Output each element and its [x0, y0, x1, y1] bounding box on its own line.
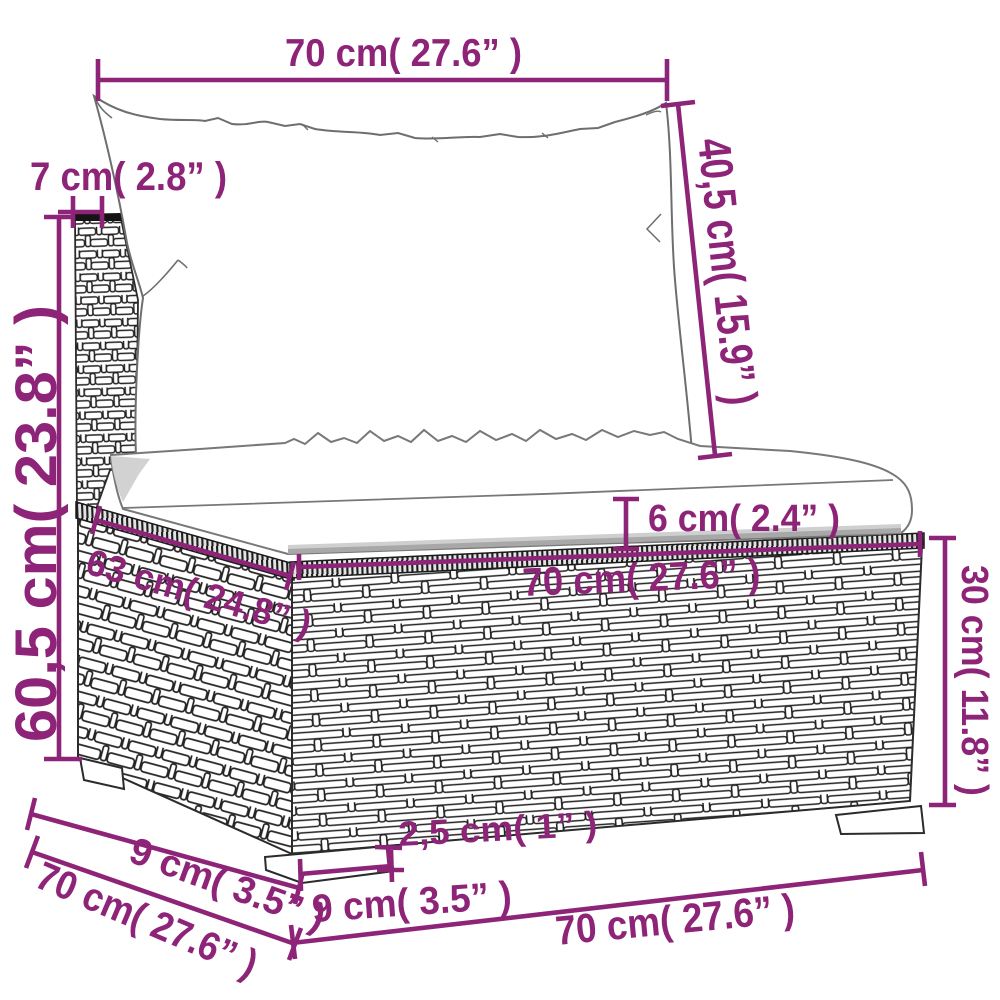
- svg-text:60,5 cm( 23.8” ): 60,5 cm( 23.8” ): [4, 305, 69, 742]
- svg-text:6 cm( 2.4” ): 6 cm( 2.4” ): [648, 498, 840, 540]
- svg-text:7 cm( 2.8” ): 7 cm( 2.8” ): [30, 155, 227, 199]
- svg-text:70 cm( 27.6” ): 70 cm( 27.6” ): [285, 32, 522, 75]
- svg-text:30 cm( 11.8” ): 30 cm( 11.8” ): [953, 565, 995, 796]
